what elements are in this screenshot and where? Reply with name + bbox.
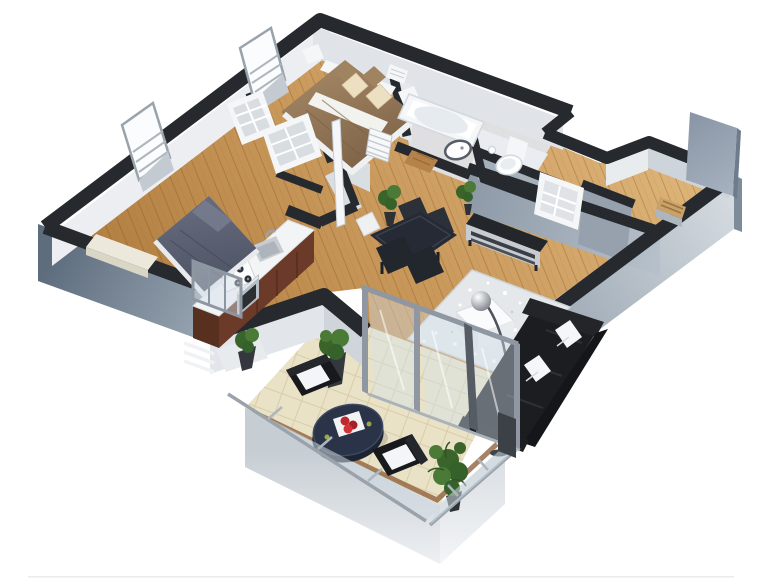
exterior-railing-bars [184, 343, 214, 372]
basin-drain [460, 146, 463, 149]
corner-post [498, 412, 516, 458]
toilet-paper-holder [489, 147, 496, 154]
lamp-dome [471, 291, 491, 311]
lime-2 [367, 422, 372, 427]
apartment-isometric-scene [0, 0, 768, 582]
floor-plan-render: 3D isometric cutaway floor plan of a two… [0, 0, 768, 582]
door-post-1 [362, 286, 368, 394]
door-post-2 [414, 305, 420, 412]
ground-shadow-line [28, 576, 734, 578]
